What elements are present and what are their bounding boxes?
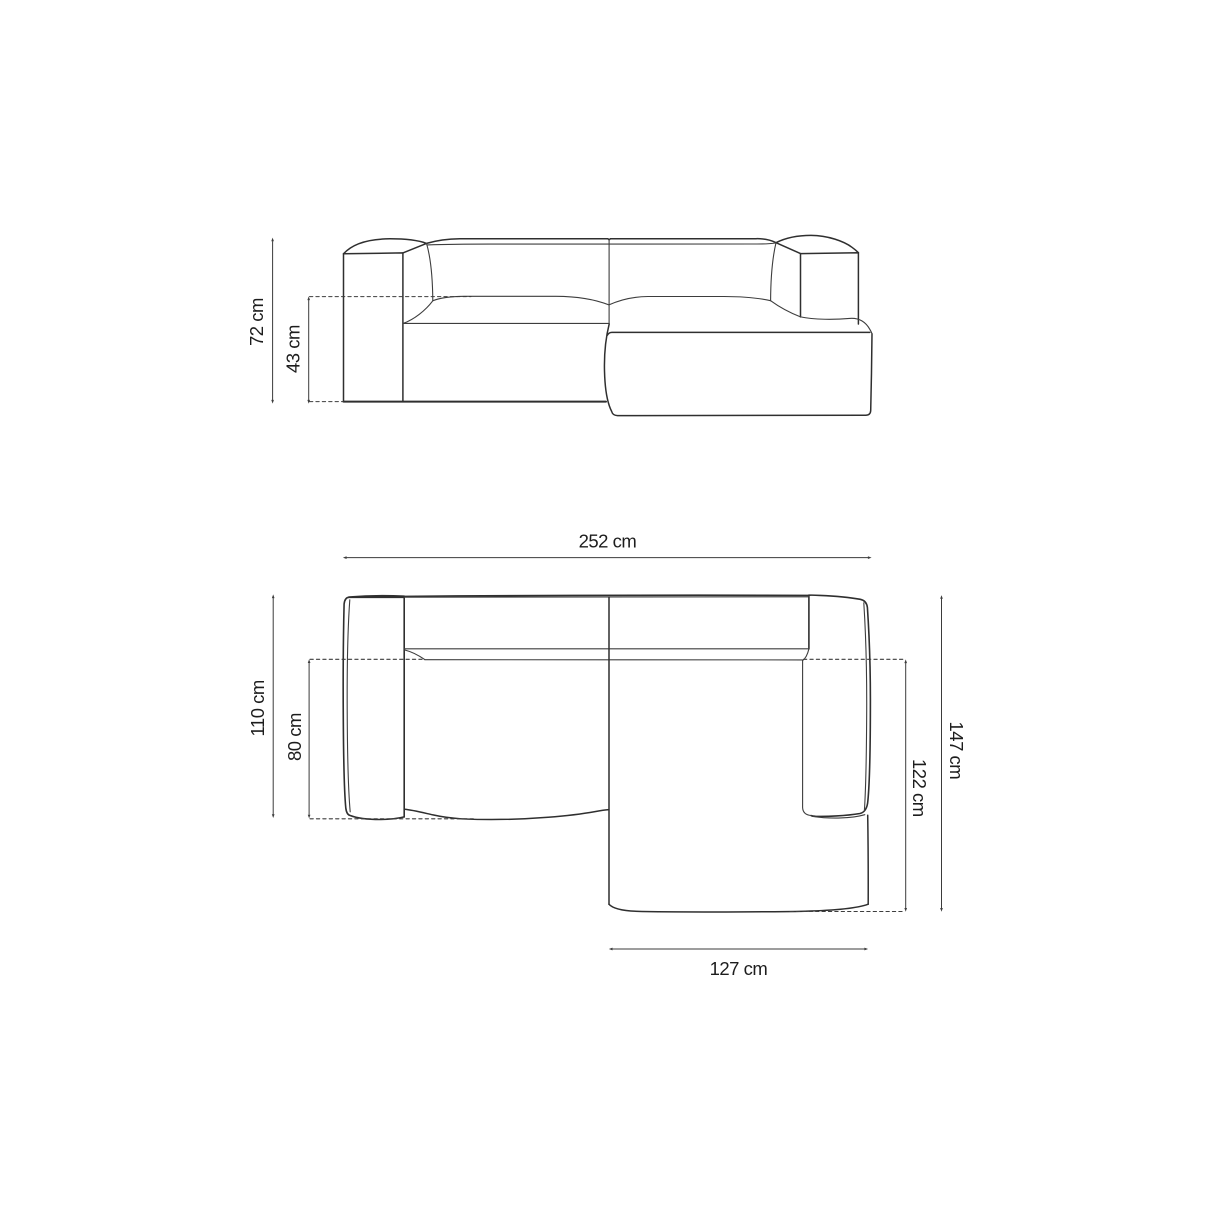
svg-text:72 cm: 72 cm (246, 298, 267, 346)
svg-text:110 cm: 110 cm (247, 680, 268, 736)
svg-text:147 cm: 147 cm (946, 722, 967, 780)
svg-text:252 cm: 252 cm (579, 531, 637, 552)
svg-text:80 cm: 80 cm (284, 713, 305, 761)
svg-text:127 cm: 127 cm (710, 958, 768, 979)
svg-text:43 cm: 43 cm (283, 325, 304, 373)
svg-text:122 cm: 122 cm (909, 759, 930, 817)
